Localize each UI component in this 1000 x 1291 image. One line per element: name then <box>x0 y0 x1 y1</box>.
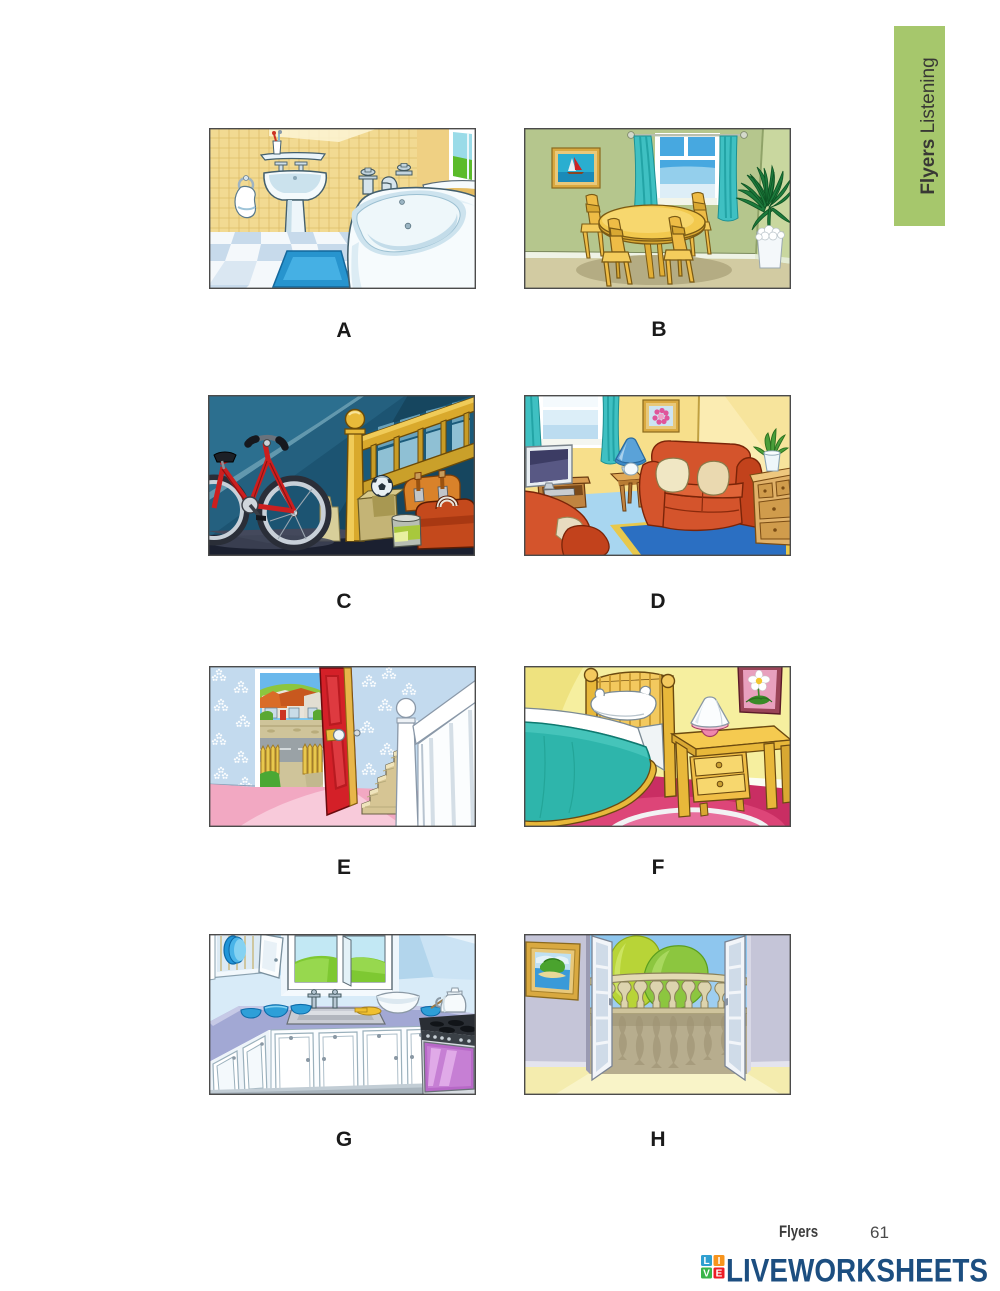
svg-text:L: L <box>703 1256 709 1267</box>
svg-text:LIVEWORKSHEETS: LIVEWORKSHEETS <box>726 1253 988 1287</box>
svg-text:E: E <box>716 1269 723 1280</box>
svg-text:V: V <box>703 1269 710 1280</box>
svg-text:I: I <box>718 1256 721 1267</box>
